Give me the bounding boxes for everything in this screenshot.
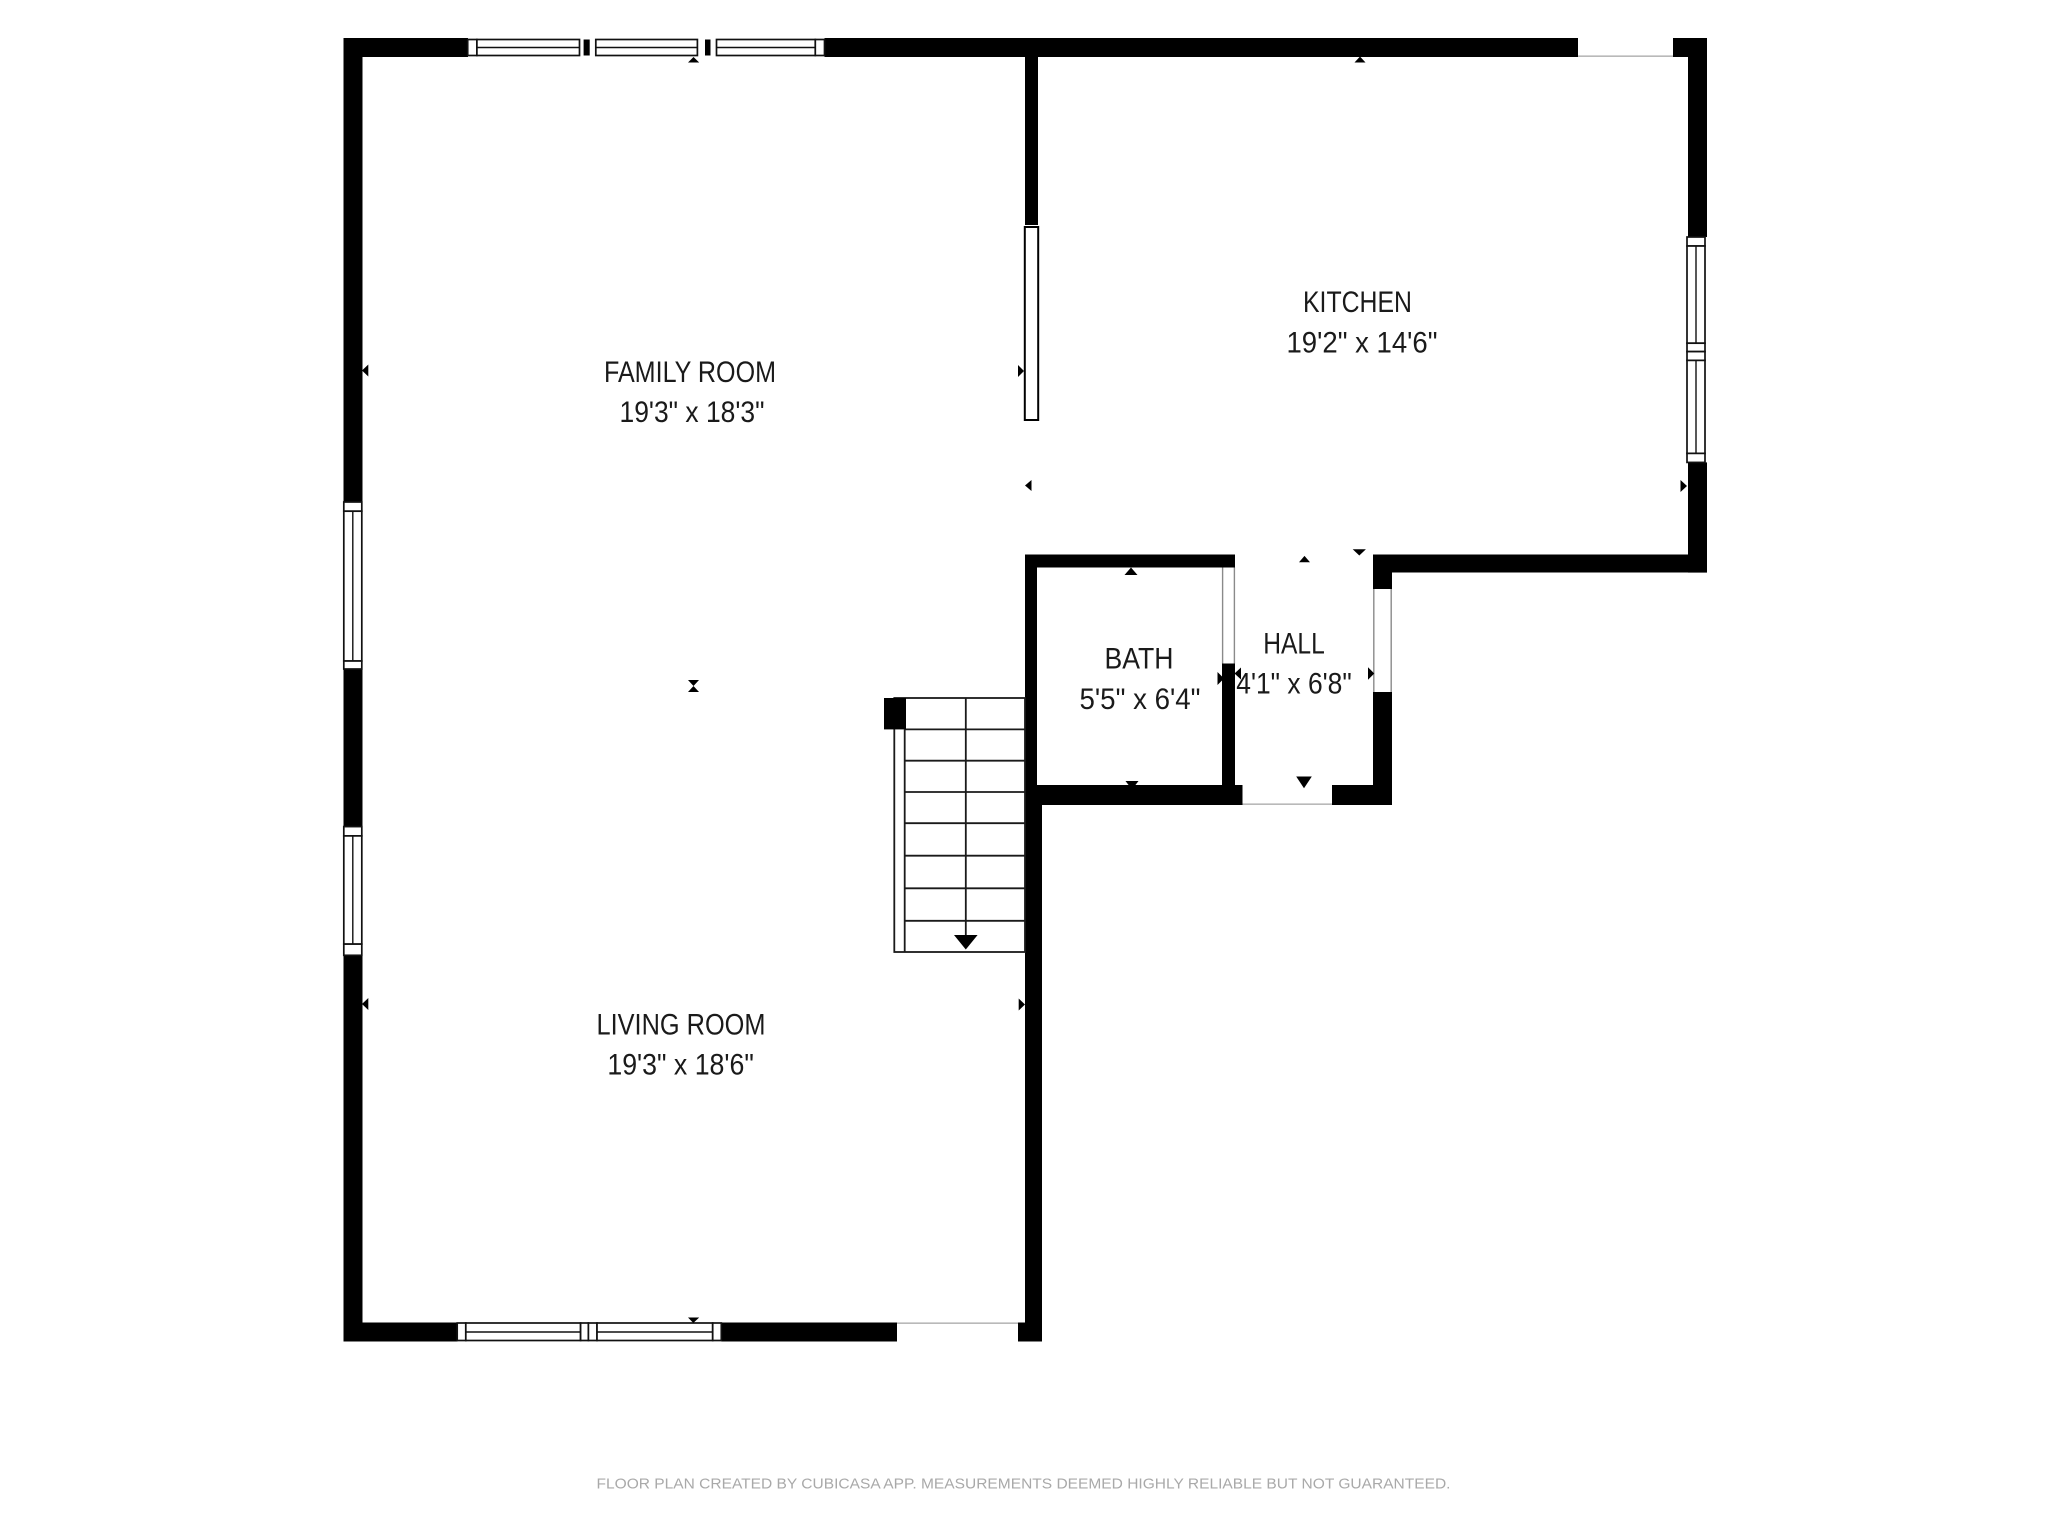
svg-text:FAMILY ROOM: FAMILY ROOM	[604, 356, 776, 389]
svg-text:19'3" x 18'3": 19'3" x 18'3"	[620, 396, 765, 429]
svg-text:19'2" x 14'6": 19'2" x 14'6"	[1287, 326, 1438, 359]
svg-text:HALL: HALL	[1263, 628, 1325, 661]
svg-text:FLOOR PLAN CREATED BY CUBICASA: FLOOR PLAN CREATED BY CUBICASA APP. MEAS…	[597, 1477, 1451, 1493]
svg-text:5'5" x 6'4": 5'5" x 6'4"	[1080, 683, 1201, 716]
svg-text:19'3" x 18'6": 19'3" x 18'6"	[607, 1049, 754, 1082]
svg-text:LIVING ROOM: LIVING ROOM	[597, 1009, 766, 1042]
svg-text:KITCHEN: KITCHEN	[1303, 286, 1412, 319]
svg-text:4'1" x 6'8": 4'1" x 6'8"	[1236, 667, 1352, 700]
svg-text:BATH: BATH	[1105, 643, 1174, 676]
